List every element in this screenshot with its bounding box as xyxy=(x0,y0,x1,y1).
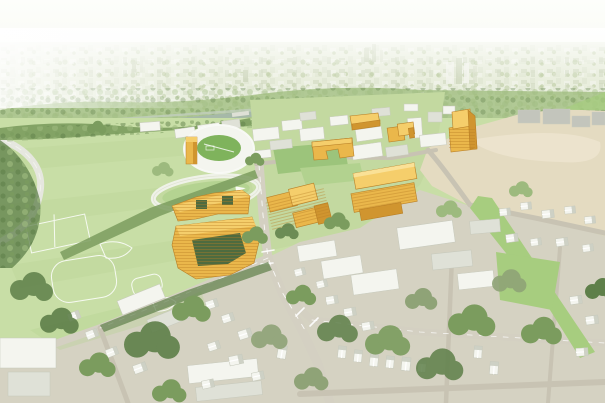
house xyxy=(369,353,379,366)
stadium xyxy=(184,125,254,173)
house xyxy=(584,216,595,224)
house xyxy=(401,357,411,371)
house xyxy=(353,350,362,363)
house xyxy=(585,315,599,325)
house xyxy=(499,208,510,216)
house xyxy=(570,295,583,305)
house xyxy=(576,348,589,357)
house xyxy=(474,346,483,359)
house xyxy=(564,206,575,214)
house xyxy=(325,295,338,305)
house xyxy=(489,361,498,374)
house xyxy=(582,244,594,253)
house xyxy=(556,237,569,247)
haze-fade-left xyxy=(0,28,210,108)
house xyxy=(385,356,394,369)
house xyxy=(530,238,542,247)
aerial-rendering xyxy=(0,0,605,403)
house xyxy=(337,346,346,359)
rendering-canvas xyxy=(0,0,605,403)
house xyxy=(361,321,374,331)
stadium-corner-tower xyxy=(186,137,197,164)
house xyxy=(542,209,555,218)
athletic-building xyxy=(140,121,161,131)
proposed-tower xyxy=(449,109,477,152)
house xyxy=(506,233,519,243)
house xyxy=(343,307,356,317)
house xyxy=(520,202,531,210)
